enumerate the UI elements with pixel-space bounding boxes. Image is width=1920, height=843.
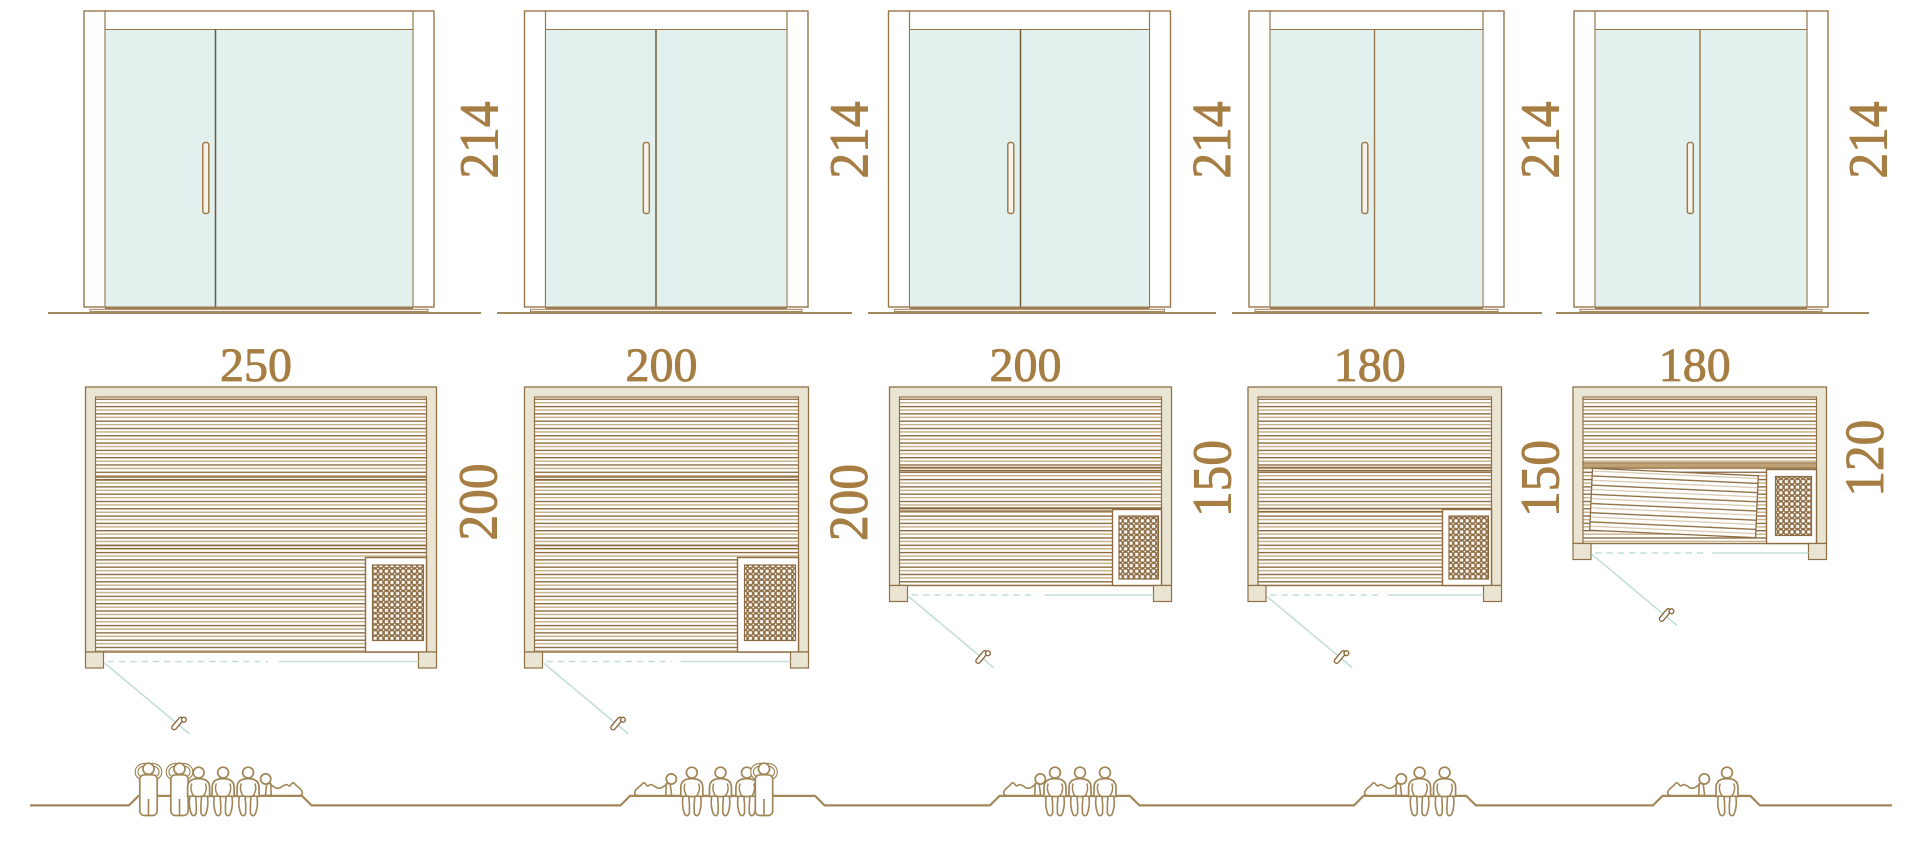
svg-text:214: 214: [1839, 101, 1899, 178]
svg-text:214: 214: [1511, 101, 1571, 178]
svg-text:200: 200: [449, 463, 509, 540]
svg-text:200: 200: [626, 339, 698, 392]
svg-text:120: 120: [1835, 420, 1895, 497]
svg-text:214: 214: [1183, 101, 1243, 178]
svg-text:180: 180: [1334, 339, 1406, 392]
svg-text:214: 214: [450, 101, 510, 178]
svg-text:200: 200: [990, 339, 1062, 392]
svg-text:150: 150: [1511, 440, 1571, 517]
svg-text:180: 180: [1659, 339, 1731, 392]
svg-text:150: 150: [1183, 440, 1243, 517]
svg-text:250: 250: [220, 339, 292, 392]
svg-text:214: 214: [820, 101, 880, 178]
svg-text:200: 200: [820, 464, 880, 541]
